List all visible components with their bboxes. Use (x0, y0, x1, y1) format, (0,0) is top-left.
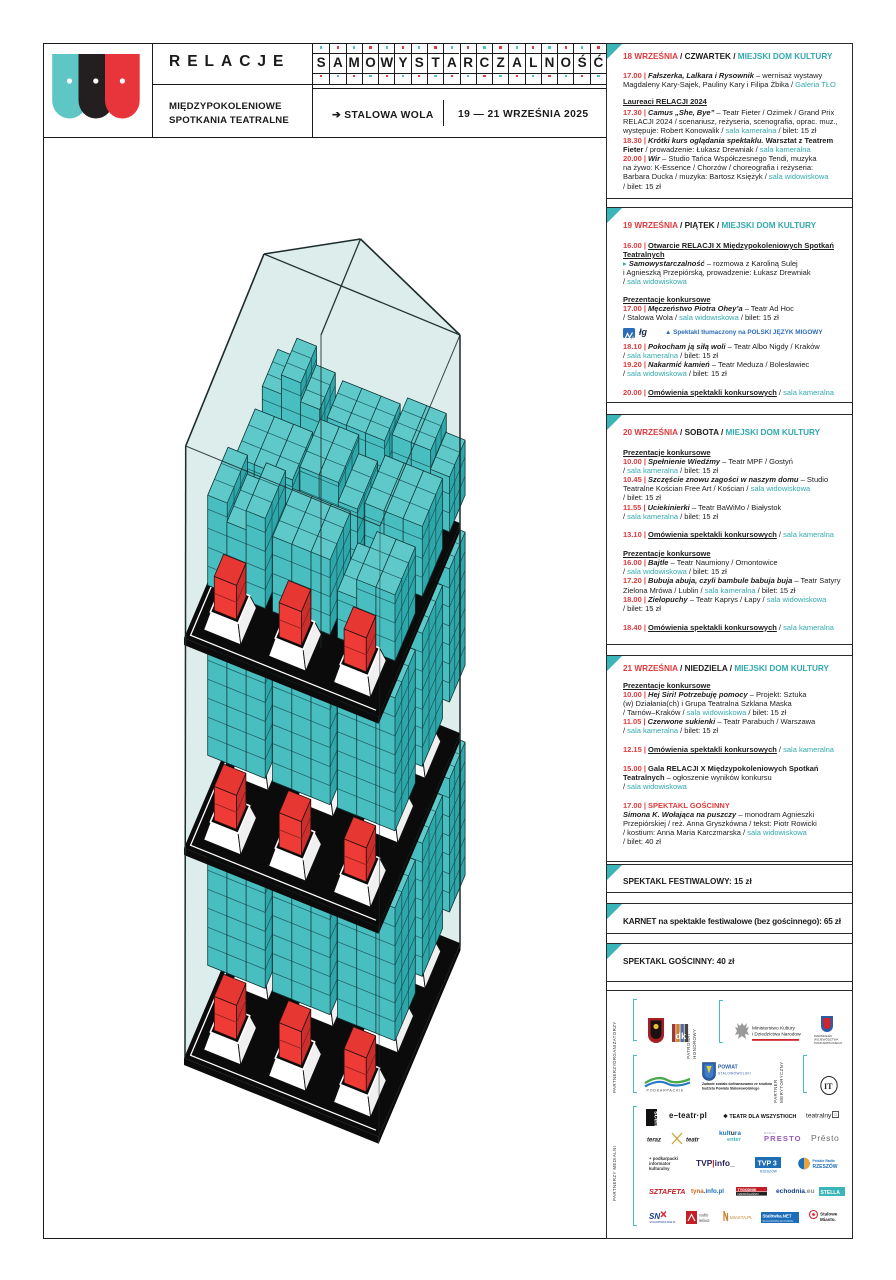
svg-text:radio: radio (699, 1213, 709, 1218)
svg-text:leliwa: leliwa (699, 1218, 710, 1223)
svg-text:MIASTA.PL: MIASTA.PL (730, 1215, 753, 1220)
svg-text:Stalówka.NET: Stalówka.NET (763, 1214, 792, 1219)
svg-text:STELLA: STELLA (821, 1190, 841, 1196)
svg-text:STALOWOWOLSKIE.PL: STALOWOWOLSKIE.PL (650, 1221, 677, 1224)
svg-text:teraz: teraz (647, 1138, 661, 1144)
svg-text:STALOWOWOLSKI PORTAL: STALOWOWOLSKI PORTAL (763, 1220, 795, 1223)
svg-text:scena: scena (653, 1111, 658, 1126)
svg-text:Polskie Radio: Polskie Radio (813, 1159, 835, 1163)
svg-text:budżetu Powiatu Stalowowolskie: budżetu Powiatu Stalowowolskiego (702, 1087, 759, 1091)
svg-text:Zadanie zostało dofinansowano: Zadanie zostało dofinansowano ze środków (702, 1082, 772, 1086)
svg-text:i Dziedzictwa Narodowego: i Dziedzictwa Narodowego (752, 1032, 801, 1038)
svg-text:IT: IT (824, 1082, 833, 1091)
svg-text:RZESZÓW: RZESZÓW (760, 1169, 778, 1174)
svg-text:RZESZÓW: RZESZÓW (813, 1162, 838, 1170)
svg-text:Ministerstwo Kultury: Ministerstwo Kultury (752, 1026, 796, 1032)
svg-text:STALOWOWOLSKI: STALOWOWOLSKI (718, 1072, 751, 1076)
svg-text:Miasto.: Miasto. (820, 1217, 836, 1222)
svg-text:PODKARPACKIE: PODKARPACKIE (647, 1089, 685, 1093)
svg-text:NADWIŚLAŃSKI: NADWIŚLAŃSKI (738, 1191, 759, 1196)
svg-text:SN: SN (649, 1212, 660, 1221)
svg-text:TYGODNIK: TYGODNIK (738, 1188, 757, 1192)
svg-text:POWIAT: POWIAT (718, 1065, 738, 1071)
svg-text:PODKARPACKIEGO: PODKARPACKIEGO (814, 1041, 843, 1045)
svg-text:Stalowe: Stalowe (820, 1212, 838, 1217)
svg-text:teatr: teatr (686, 1138, 700, 1144)
svg-text:TVP 3: TVP 3 (758, 1161, 777, 1168)
